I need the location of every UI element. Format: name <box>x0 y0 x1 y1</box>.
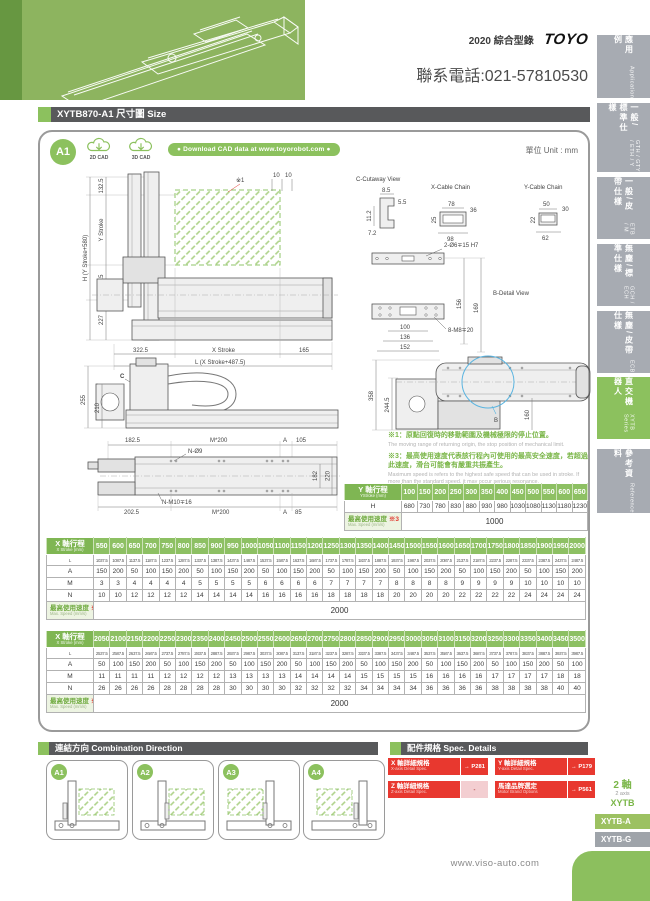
table-cell: 150 <box>126 659 142 671</box>
stroke-value: 3250 <box>487 631 503 648</box>
title-accent-square <box>38 107 51 122</box>
table-cell: 3787.5 <box>503 648 519 659</box>
stroke-value: 3000 <box>405 631 421 648</box>
dim-25: 25 <box>432 216 438 223</box>
stroke-value: 2950 <box>389 631 405 648</box>
dim-50: 50 <box>543 202 550 208</box>
table-cell: 2987.5 <box>241 648 257 659</box>
stroke-value: 3500 <box>569 631 586 648</box>
dim-85: 85 <box>295 510 302 516</box>
unit-label: 單位 Unit : mm <box>526 145 578 156</box>
table-cell: 100 <box>274 566 290 578</box>
table-cell: 1887.5 <box>372 555 388 566</box>
table-cell: 1437.5 <box>225 555 241 566</box>
table-cell: 200 <box>274 659 290 671</box>
b-detail-view: 2-Ø6∓15 H7 156 169 B-Detail View 100 136… <box>372 243 530 352</box>
table-cell: 50 <box>389 566 405 578</box>
table-cell: 38 <box>520 683 536 695</box>
table-cell: 36 <box>421 683 437 695</box>
y-cable-chain-view: Y-Cable Chain 50 30 22 62 <box>524 185 569 242</box>
stroke-value: 700 <box>143 538 159 555</box>
dim-10b: 10 <box>285 173 292 179</box>
max-speed-label: 最高使用速度 ※3Max. Speed (mm/s) <box>47 602 94 620</box>
table-cell: 150 <box>159 566 175 578</box>
model-tab-xytb-a[interactable]: XYTB-A <box>595 814 650 829</box>
combination-diagram-a2 <box>138 777 208 835</box>
table-cell: 24 <box>569 590 586 602</box>
table-cell: 3037.5 <box>257 648 273 659</box>
cad-2d-download[interactable]: 2D CAD <box>82 137 116 161</box>
stroke-value: 2650 <box>290 631 306 648</box>
table-cell: 2437.5 <box>552 555 568 566</box>
table-cell: 50 <box>257 566 273 578</box>
table-cell: 26 <box>143 683 159 695</box>
dim-322: 322.5 <box>133 348 149 354</box>
table-cell: 50 <box>552 659 568 671</box>
table-cell: 32 <box>290 683 306 695</box>
table-cell: 15 <box>405 671 421 683</box>
table-cell: 16 <box>274 590 290 602</box>
stroke-value: 2700 <box>307 631 323 648</box>
table-cell: 20 <box>405 590 421 602</box>
section-accent-square <box>38 742 49 755</box>
table-cell: 4 <box>175 578 191 590</box>
table-cell: 24 <box>552 590 568 602</box>
table-cell: 50 <box>192 566 208 578</box>
stroke-value: 750 <box>159 538 175 555</box>
sidebar-tab-etb-m[interactable]: 一般/皮帶仕樣ETB / M <box>597 177 650 239</box>
table-cell: 50 <box>290 659 306 671</box>
table-cell: 22 <box>454 590 470 602</box>
stroke-value: 2300 <box>175 631 191 648</box>
note-1-en: The moving range of returning origin, th… <box>388 442 592 449</box>
stroke-value: 2800 <box>339 631 355 648</box>
x-stroke-table-1: X 軸行程X Stroke (mm)5506006507007508008509… <box>46 537 586 620</box>
stroke-value: 2150 <box>126 631 142 648</box>
table-cell: 3137.5 <box>290 648 306 659</box>
sidebar-tab-gth-gty-eth-y[interactable]: 一般/標準仕樣GTH / GTY / ETH / Y <box>597 103 650 172</box>
c-cutaway-title: C-Cutaway View <box>356 177 401 183</box>
table-cell: 14 <box>208 590 224 602</box>
table-cell: 100 <box>110 659 126 671</box>
table-cell: 1080 <box>526 501 542 513</box>
section-title-bar: XYTB870-A1 尺寸圖 Size <box>38 107 590 122</box>
stroke-value: 2500 <box>241 631 257 648</box>
dim-182: 182 <box>313 470 319 481</box>
table-cell: 2287.5 <box>503 555 519 566</box>
table-cell: 2937.5 <box>225 648 241 659</box>
spec-button-motor-brand[interactable]: 馬達品牌選定Motor Brand Options → P561 <box>495 781 595 798</box>
dim-105: 105 <box>296 438 307 444</box>
table-cell: 15 <box>356 671 372 683</box>
table-cell: 7 <box>356 578 372 590</box>
table-cell: 1537.5 <box>257 555 273 566</box>
table-cell: 3587.5 <box>438 648 454 659</box>
sidebar-tab-xytb-series[interactable]: 直交機器人XYTB Series <box>597 377 650 439</box>
table-cell: 11 <box>110 671 126 683</box>
stroke-value: 3200 <box>470 631 486 648</box>
table-cell: 17 <box>520 671 536 683</box>
table-cell: 2387.5 <box>536 555 552 566</box>
table-cell: 150 <box>389 659 405 671</box>
table-cell: 14 <box>192 590 208 602</box>
table-cell: 2137.5 <box>454 555 470 566</box>
table-cell: 40 <box>569 683 586 695</box>
table-cell: 100 <box>241 659 257 671</box>
table-cell: 1387.5 <box>208 555 224 566</box>
table-cell: 150 <box>356 566 372 578</box>
table-cell: 8 <box>405 578 421 590</box>
combination-header-en: Combination Direction <box>91 743 182 753</box>
table-cell: 16 <box>307 590 323 602</box>
stroke-value: 1650 <box>454 538 470 555</box>
table-cell: 18 <box>569 671 586 683</box>
stroke-value: 1300 <box>339 538 355 555</box>
table-cell: 1230 <box>572 501 588 513</box>
stroke-value: 1400 <box>372 538 388 555</box>
sidebar-tab-reference[interactable]: 參考資料Reference <box>597 449 650 513</box>
table-cell: 8 <box>389 578 405 590</box>
page-ref: → P561 <box>568 781 595 798</box>
row-label: M <box>47 671 94 683</box>
stroke-value: 1850 <box>520 538 536 555</box>
table-cell: 10 <box>569 578 586 590</box>
table-cell: 16 <box>290 590 306 602</box>
stroke-value: 1350 <box>356 538 372 555</box>
dim-62: 62 <box>542 236 549 242</box>
table-cell: 100 <box>208 566 224 578</box>
table-cell: 26 <box>110 683 126 695</box>
x-cable-chain-view: X-Cable Chain 78 36 25 98 <box>431 185 477 243</box>
page-ref: → P281 <box>461 758 488 775</box>
table-cell: 50 <box>323 566 339 578</box>
page-title: XYTB870-A1 尺寸圖 Size <box>51 107 590 122</box>
table-cell: 980 <box>495 501 511 513</box>
table-cell: 3337.5 <box>356 648 372 659</box>
stroke-value: 1550 <box>421 538 437 555</box>
table-cell: 1987.5 <box>405 555 421 566</box>
stroke-value: 250 <box>448 484 464 501</box>
note-ref-1: ※1 <box>236 177 245 184</box>
top-view: 358 244.5 B 160 <box>369 356 590 430</box>
max-speed-value: 2000 <box>94 695 586 713</box>
table-cell: 11 <box>143 671 159 683</box>
table-cell: 3187.5 <box>307 648 323 659</box>
stroke-value: 1150 <box>290 538 306 555</box>
table-cell: 2487.5 <box>569 555 586 566</box>
table-cell: 11 <box>94 671 110 683</box>
table-cell: 1337.5 <box>192 555 208 566</box>
dim-202-5: 202.5 <box>124 510 140 516</box>
table-cell: 24 <box>536 590 552 602</box>
table-cell: 12 <box>208 671 224 683</box>
table-cell: 200 <box>307 566 323 578</box>
table-cell: 2087.5 <box>438 555 454 566</box>
stroke-value: 2000 <box>569 538 586 555</box>
table-cell: 30 <box>257 683 273 695</box>
toyo-logo: TOYO <box>543 31 590 48</box>
table-cell: 150 <box>487 566 503 578</box>
max-speed-value: 1000 <box>402 513 588 531</box>
table-cell: 6 <box>274 578 290 590</box>
table-cell: 150 <box>323 659 339 671</box>
table-cell: 18 <box>552 671 568 683</box>
table-cell: 200 <box>405 659 421 671</box>
table-cell: 1287.5 <box>175 555 191 566</box>
table-cell: 150 <box>192 659 208 671</box>
dim-30: 30 <box>562 207 569 213</box>
table-cell: 10 <box>94 590 110 602</box>
table-cell: 50 <box>159 659 175 671</box>
screw-callout-nm10: N-M10∓16 <box>162 500 192 506</box>
spec-button-z-axis[interactable]: Z 軸詳細規格Z-axis Detail Spec. - <box>388 781 488 798</box>
table-cell: 10 <box>520 578 536 590</box>
spec-button-x-axis[interactable]: X 軸詳細規格X-axis Detail Spec. → P281 <box>388 758 488 775</box>
dim-358: 358 <box>369 390 375 401</box>
max-speed-label: 最高使用速度 ※3Max. Speed (mm/s) <box>345 513 402 531</box>
table-cell: 830 <box>448 501 464 513</box>
table-cell: 18 <box>323 590 339 602</box>
table-cell: 1587.5 <box>274 555 290 566</box>
row-label: A <box>47 566 94 578</box>
table-cell: 50 <box>94 659 110 671</box>
table-cell: 13 <box>257 671 273 683</box>
table-cell: 3087.5 <box>274 648 290 659</box>
dim-36: 36 <box>470 208 477 214</box>
table-cell: 680 <box>402 501 418 513</box>
table-cell: 3887.5 <box>536 648 552 659</box>
stroke-value: 2200 <box>143 631 159 648</box>
row-label: M <box>47 578 94 590</box>
stroke-value: 1000 <box>241 538 257 555</box>
dim-165: 165 <box>299 348 310 354</box>
table-cell: 12 <box>143 590 159 602</box>
table-cell: 3837.5 <box>520 648 536 659</box>
stroke-value: 100 <box>402 484 418 501</box>
stroke-value: 650 <box>572 484 588 501</box>
dim-a-top: A <box>283 438 287 444</box>
table-cell: 30 <box>241 683 257 695</box>
catalog-title: 2020 綜合型錄 <box>469 32 534 47</box>
stroke-value: 600 <box>110 538 126 555</box>
model-tab-xytb-g[interactable]: XYTB-G <box>595 832 650 847</box>
hole-callout-n9: N-Ø9 <box>188 449 203 455</box>
series-axis-en: 2 axis <box>595 791 650 798</box>
table-cell: 8 <box>438 578 454 590</box>
table-cell: 200 <box>143 659 159 671</box>
dim-78: 78 <box>448 202 455 208</box>
stroke-value: 1950 <box>552 538 568 555</box>
stroke-value: 2550 <box>257 631 273 648</box>
hole-callout: 2-Ø6∓15 H7 <box>444 243 479 249</box>
table-cell: 1837.5 <box>356 555 372 566</box>
stroke-value: 3050 <box>421 631 437 648</box>
table-cell: 100 <box>470 566 486 578</box>
table-cell: 150 <box>421 566 437 578</box>
dim-7-2: 7.2 <box>368 231 377 237</box>
stroke-value: 2250 <box>159 631 175 648</box>
dimension-panel: .mech{fill:#efefef;stroke:#555;stroke-wi… <box>38 130 590 732</box>
table-cell: 13 <box>241 671 257 683</box>
website-footer: www.viso-auto.com <box>420 858 570 869</box>
row-label: A <box>47 659 94 671</box>
dim-8-5: 8.5 <box>382 188 391 194</box>
table-cell: 20 <box>389 590 405 602</box>
table-cell: 14 <box>323 671 339 683</box>
table-cell: 50 <box>126 566 142 578</box>
stroke-value: 3300 <box>503 631 519 648</box>
stroke-value: 550 <box>94 538 110 555</box>
cad-3d-download[interactable]: 3D CAD <box>124 137 158 161</box>
x-stroke-table-2: X 軸行程X Stroke (mm)2050210021502200225023… <box>46 630 586 713</box>
table-cell: 200 <box>503 566 519 578</box>
stroke-value: 200 <box>433 484 449 501</box>
stroke-value: 2850 <box>356 631 372 648</box>
table-cell: 100 <box>438 659 454 671</box>
combination-diagram-a4 <box>309 777 379 835</box>
table-cell: 20 <box>421 590 437 602</box>
dim-m200-top: M*200 <box>210 438 228 444</box>
table-cell: 12 <box>159 590 175 602</box>
table-cell: 3237.5 <box>323 648 339 659</box>
dim-156: 156 <box>457 298 463 309</box>
dim-a-bottom: A <box>283 510 287 516</box>
table-cell: 1187.5 <box>143 555 159 566</box>
catalog-header: 2020 綜合型錄 TOYO <box>250 30 588 48</box>
table-cell: 36 <box>470 683 486 695</box>
stroke-value: 850 <box>192 538 208 555</box>
dim-220-plan: 220 <box>326 470 332 481</box>
cloud-download-icon <box>126 137 156 155</box>
front-view: H (Y Stroke+580) 132.5 Y Stroke 220.5 22… <box>83 172 338 370</box>
sidebar-tab-ecb[interactable]: 無塵/皮帶仕樣ECB <box>597 311 650 373</box>
table-cell: 2587.5 <box>110 648 126 659</box>
stroke-value: 2100 <box>110 631 126 648</box>
stroke-value: 3100 <box>438 631 454 648</box>
table-cell: 100 <box>372 659 388 671</box>
table-cell: 200 <box>536 659 552 671</box>
table-cell: 14 <box>225 590 241 602</box>
table-cell: 200 <box>175 566 191 578</box>
table-cell: 9 <box>487 578 503 590</box>
stroke-value: 350 <box>479 484 495 501</box>
spec-button-y-axis[interactable]: Y 軸詳細規格Y-axis Detail Spec. → P179 <box>495 758 595 775</box>
table-cell: 6 <box>290 578 306 590</box>
table-cell: 100 <box>405 566 421 578</box>
stroke-value: 1050 <box>257 538 273 555</box>
table-cell: 5 <box>241 578 257 590</box>
dim-152: 152 <box>400 345 411 351</box>
sidebar-tab-gch-ech[interactable]: 無塵/標準仕樣GCH / ECH <box>597 244 650 306</box>
table-cell: 3437.5 <box>389 648 405 659</box>
download-cad-link[interactable]: ● Download CAD data at www.toyorobot.com… <box>168 143 340 156</box>
stroke-value: 1500 <box>405 538 421 555</box>
table-cell: 100 <box>175 659 191 671</box>
sidebar-tab-application[interactable]: 應用例Application <box>597 35 650 98</box>
table-cell: 2037.5 <box>421 555 437 566</box>
stroke-value: 1200 <box>307 538 323 555</box>
stroke-value: 1700 <box>470 538 486 555</box>
stroke-value: 1900 <box>536 538 552 555</box>
table-cell: 1137.5 <box>126 555 142 566</box>
table-cell: 200 <box>208 659 224 671</box>
y-chain-title: Y-Cable Chain <box>524 185 562 191</box>
dim-m200-bottom: M*200 <box>212 510 230 516</box>
c-cutaway-view: C-Cutaway View 8.5 5.5 11.2 7.2 <box>356 177 407 237</box>
table-cell: 3737.5 <box>487 648 503 659</box>
table-cell: 1937.5 <box>389 555 405 566</box>
table-cell: 30 <box>274 683 290 695</box>
stroke-header-label: Y 軸行程YStroke (mm) <box>345 484 402 501</box>
table-cell: 200 <box>110 566 126 578</box>
stroke-value: 2600 <box>274 631 290 648</box>
table-cell: 730 <box>417 501 433 513</box>
footnotes: ※1：原點回復時的移動範圍及機械極限的停止位置。 The moving rang… <box>388 431 592 489</box>
spec-header-zh: 配件規格 <box>407 743 441 753</box>
table-cell: 2537.5 <box>94 648 110 659</box>
dim-160: 160 <box>525 409 531 420</box>
table-cell: 34 <box>389 683 405 695</box>
table-cell: 50 <box>487 659 503 671</box>
dim-136: 136 <box>400 335 411 341</box>
table-cell: 7 <box>323 578 339 590</box>
table-cell: 3387.5 <box>372 648 388 659</box>
table-cell: 1487.5 <box>241 555 257 566</box>
table-cell: 930 <box>479 501 495 513</box>
table-cell: 150 <box>520 659 536 671</box>
table-cell: 50 <box>454 566 470 578</box>
table-cell: 4 <box>159 578 175 590</box>
table-cell: 200 <box>569 566 586 578</box>
stroke-value: 300 <box>464 484 480 501</box>
row-label: L <box>47 555 94 566</box>
table-cell: 12 <box>175 671 191 683</box>
table-cell: 50 <box>356 659 372 671</box>
stroke-value: 900 <box>208 538 224 555</box>
stroke-header-label: X 軸行程X Stroke (mm) <box>47 538 94 555</box>
dim-22: 22 <box>531 216 537 223</box>
b-detail-title: B-Detail View <box>493 291 530 297</box>
table-cell: 12 <box>175 590 191 602</box>
table-cell: 11 <box>126 671 142 683</box>
x-chain-title: X-Cable Chain <box>431 185 470 191</box>
stroke-value: 1100 <box>274 538 290 555</box>
stroke-value: 1750 <box>487 538 503 555</box>
table-cell: 100 <box>307 659 323 671</box>
table-cell: 20 <box>438 590 454 602</box>
table-cell: 32 <box>323 683 339 695</box>
stroke-value: 2750 <box>323 631 339 648</box>
table-cell: 40 <box>552 683 568 695</box>
stroke-value: 800 <box>175 538 191 555</box>
table-cell: 32 <box>307 683 323 695</box>
table-cell: 3537.5 <box>421 648 437 659</box>
combination-card-a3: A3 <box>218 760 300 840</box>
table-cell: 13 <box>225 671 241 683</box>
table-cell: 4 <box>126 578 142 590</box>
stroke-value: 650 <box>126 538 142 555</box>
table-cell: 34 <box>356 683 372 695</box>
dim-y-stroke: Y Stroke <box>99 218 105 242</box>
table-cell: 24 <box>520 590 536 602</box>
table-cell: 150 <box>552 566 568 578</box>
table-cell: 10 <box>552 578 568 590</box>
table-cell: 100 <box>339 566 355 578</box>
table-cell: 100 <box>569 659 586 671</box>
table-cell: 100 <box>536 566 552 578</box>
table-cell: 3937.5 <box>552 648 568 659</box>
table-cell: 17 <box>536 671 552 683</box>
